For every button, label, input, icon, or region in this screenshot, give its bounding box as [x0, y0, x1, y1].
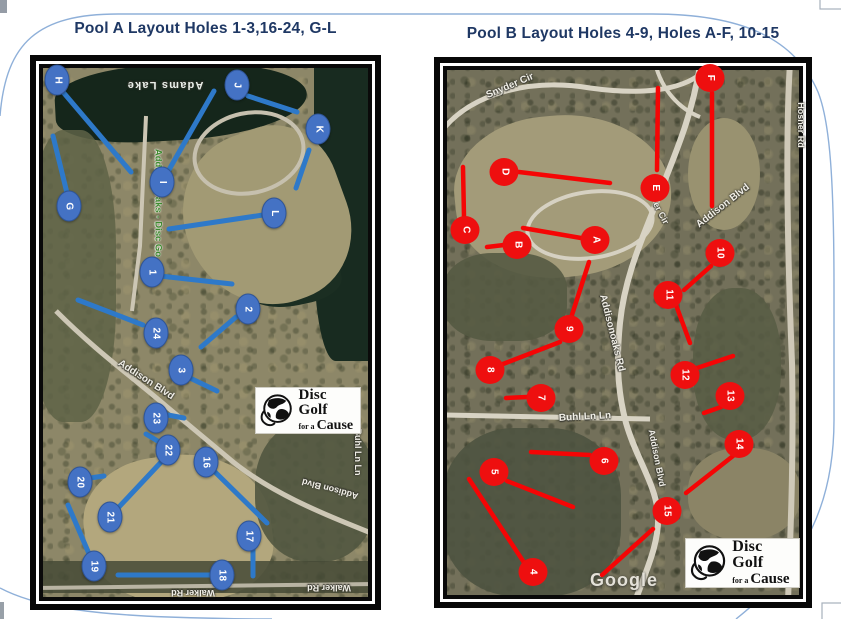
addison-blvd-road: [618, 66, 700, 599]
corner-box-top-right: [820, 0, 841, 9]
corner-box-top-left: [0, 0, 7, 13]
logo-line1: Disc Golf: [298, 388, 356, 418]
logo-line2-big: Cause: [750, 572, 789, 587]
logo-text: Disc Golf for a Cause: [298, 388, 356, 433]
buhl-ln-road: [445, 415, 650, 419]
corner-box-bottom-right: [822, 603, 841, 619]
pool-a-title: Pool A Layout Holes 1-3,16-24, G-L: [30, 20, 381, 38]
pool-a-satellite-terrain: [36, 61, 375, 604]
pool-b-satellite-terrain: [440, 63, 806, 602]
pool-b-title: Pool B Layout Holes 4-9, Holes A-F, 10-1…: [434, 25, 812, 43]
logo-line1: Disc Golf: [732, 539, 795, 571]
loop-road: [187, 102, 311, 203]
google-watermark: Google: [590, 570, 658, 591]
logo-text: Disc Golf for a Cause: [732, 539, 795, 587]
logo-line2-small: for a: [298, 423, 314, 431]
globe-hand-icon: [258, 391, 295, 431]
park-drive-road: [132, 116, 146, 311]
logo-line2-small: for a: [732, 577, 748, 585]
pool-a-map: [30, 55, 381, 610]
pool-b-map: [434, 57, 812, 608]
pool-a-roads: [36, 61, 375, 604]
corner-box-bottom-left: [0, 602, 4, 619]
disc-golf-cause-logo: Disc Golf for a Cause: [685, 538, 800, 588]
pool-b-roads: [440, 63, 806, 602]
walker-rd-road: [36, 584, 375, 588]
slide: Pool A Layout Holes 1-3,16-24, G-L Pool …: [0, 0, 841, 619]
logo-line2-big: Cause: [317, 419, 354, 433]
globe-hand-icon: [688, 542, 729, 585]
hosner-rd-road: [787, 63, 792, 602]
disc-golf-cause-logo: Disc Golf for a Cause: [255, 387, 361, 434]
